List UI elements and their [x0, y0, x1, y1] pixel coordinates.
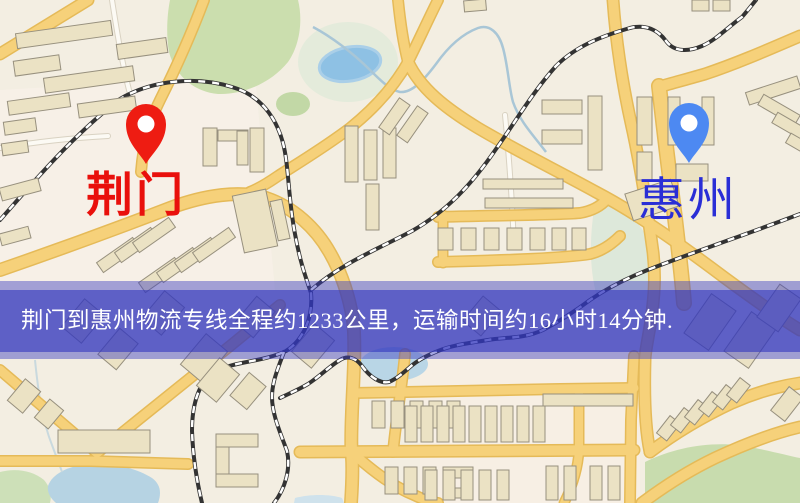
route-info-banner-core: 荆门到惠州物流专线全程约1233公里，运输时间约16小时14分钟. [0, 290, 800, 352]
route-info-text: 荆门到惠州物流专线全程约1233公里，运输时间约16小时14分钟. [0, 290, 800, 352]
map-viewport[interactable]: 荆门 惠州 荆门到惠州物流专线全程约1233公里，运输时间约16小时14分钟. [0, 0, 800, 503]
map-canvas[interactable] [0, 0, 800, 503]
route-info-banner: 荆门到惠州物流专线全程约1233公里，运输时间约16小时14分钟. [0, 281, 800, 359]
